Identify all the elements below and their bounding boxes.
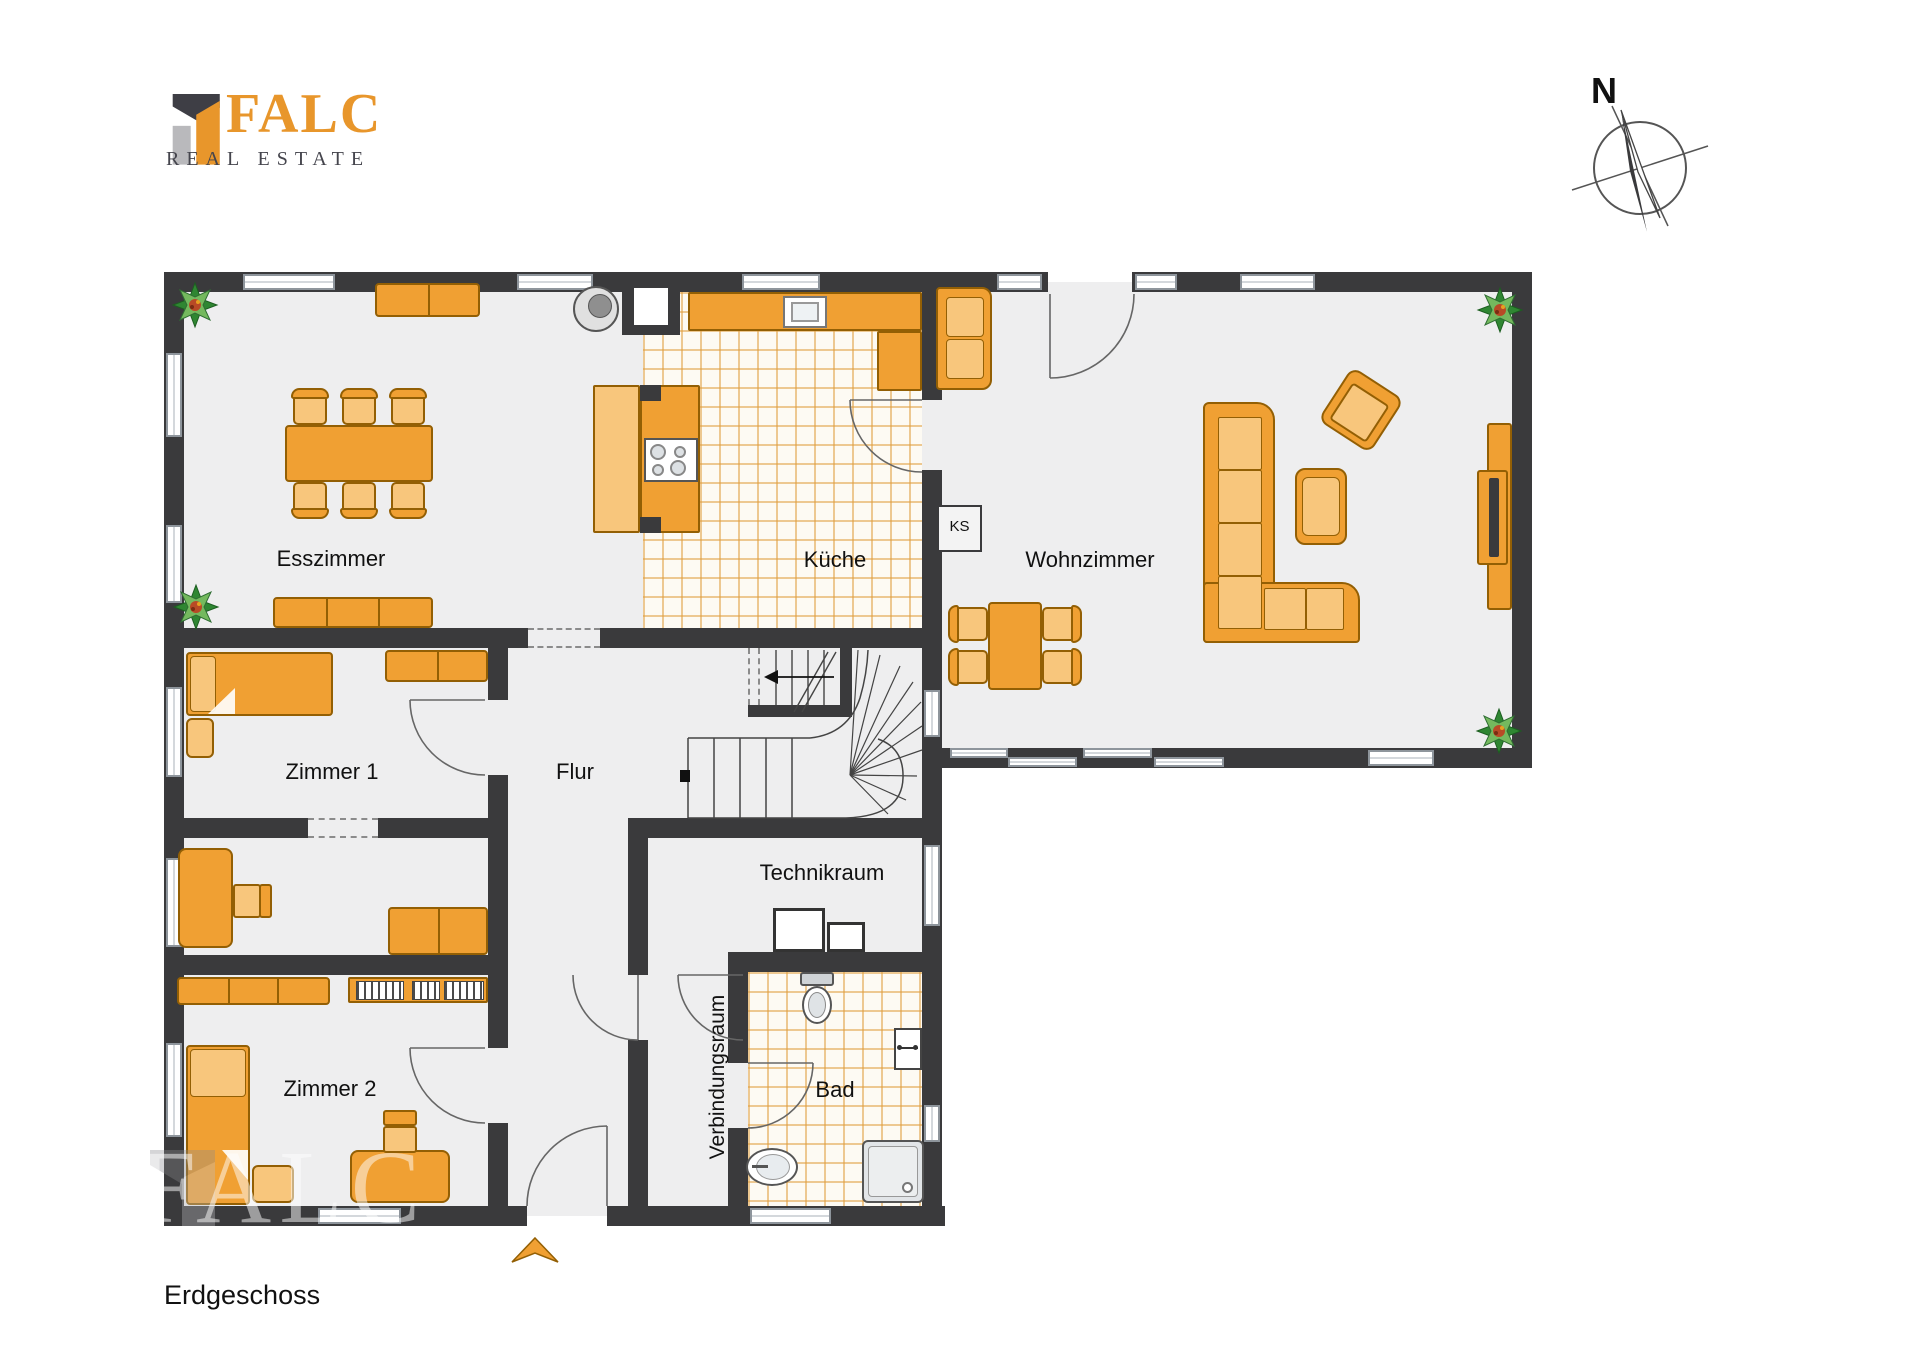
- dining-chair: [952, 650, 988, 684]
- sideboard: [385, 650, 488, 682]
- wall-v1-b: [488, 775, 508, 1048]
- dining-chair: [1042, 607, 1078, 641]
- shower-drain: [902, 1182, 913, 1193]
- window: [1135, 274, 1177, 290]
- compass-north-label: N: [1584, 70, 1624, 112]
- sofa-cushion: [946, 297, 984, 337]
- window: [1368, 750, 1434, 766]
- boiler-bracket: [827, 922, 865, 952]
- window: [166, 687, 182, 777]
- window: [997, 274, 1042, 290]
- wardrobe: [348, 977, 488, 1003]
- nightstand: [252, 1165, 294, 1203]
- wall-h2-a: [164, 818, 308, 838]
- desk-chair: [383, 1126, 417, 1153]
- tv-screen: [1489, 478, 1499, 557]
- wall-wz-right: [1512, 272, 1532, 768]
- burner: [650, 444, 666, 460]
- desk: [350, 1150, 450, 1203]
- compass-icon: [1572, 106, 1708, 232]
- fridge-label: KS: [937, 518, 982, 535]
- toilet-tank: [800, 972, 834, 986]
- entrance-arrow-icon: [512, 1238, 558, 1262]
- coffee-table-top: [1302, 477, 1340, 536]
- window: [924, 845, 940, 926]
- wood-stove-inner: [588, 294, 612, 318]
- wall-h2-b: [378, 818, 508, 838]
- window: [166, 1043, 182, 1137]
- kitchen-counter-right: [877, 331, 922, 391]
- clothes-rail-icon: [356, 981, 404, 1000]
- dining-chair: [342, 482, 376, 515]
- window: [1008, 757, 1077, 767]
- island-joint: [640, 517, 661, 533]
- sofa-cushion: [1218, 523, 1262, 576]
- window: [750, 1208, 831, 1224]
- wall-niche-bottom: [748, 705, 852, 717]
- burner: [652, 464, 664, 476]
- label-wohnzimmer: Wohnzimmer: [990, 547, 1190, 573]
- island-joint: [640, 385, 661, 401]
- wall-h4: [628, 818, 922, 838]
- dining-chair: [391, 392, 425, 425]
- logo-wordmark: FALC: [226, 82, 382, 146]
- wall-h5: [728, 952, 942, 972]
- desk-chair-back: [383, 1110, 417, 1126]
- label-bad: Bad: [735, 1077, 935, 1103]
- open-passage: [528, 628, 600, 648]
- label-zimmer1: Zimmer 1: [232, 759, 432, 785]
- window: [517, 274, 593, 290]
- floorplan-page: FALC REAL ESTATE N: [0, 0, 1920, 1357]
- kitchen-island: [593, 385, 640, 533]
- desk: [178, 848, 233, 948]
- wall-v1-c: [488, 1123, 508, 1206]
- wall-v2-b: [628, 1040, 648, 1206]
- toilet-bowl: [808, 992, 826, 1018]
- dining-table: [285, 425, 433, 482]
- window: [950, 748, 1008, 758]
- radiator-knob: [897, 1045, 902, 1050]
- sofa-cushion: [1264, 588, 1306, 630]
- dining-chair: [293, 392, 327, 425]
- window: [243, 274, 335, 290]
- wall-h1-a: [164, 628, 528, 648]
- wall-v2-a: [628, 838, 648, 975]
- label-kueche: Küche: [735, 547, 935, 573]
- boiler-icon: [773, 908, 825, 952]
- sofa-cushion: [1218, 576, 1262, 629]
- sofa-cushion: [1218, 470, 1262, 523]
- dresser: [388, 907, 488, 955]
- sink-tap: [752, 1165, 768, 1168]
- small-dining-table: [988, 602, 1042, 690]
- sideboard: [375, 283, 480, 317]
- wall-top-b: [1132, 272, 1532, 292]
- window: [166, 525, 182, 603]
- logo-tagline: REAL ESTATE: [166, 148, 370, 171]
- clothes-rail-icon: [444, 981, 484, 1000]
- desk-chair: [233, 884, 261, 918]
- wall-h3: [164, 955, 508, 975]
- wall-v1-a: [488, 648, 508, 700]
- radiator-knob: [913, 1045, 918, 1050]
- burner: [670, 460, 686, 476]
- dining-chair: [293, 482, 327, 515]
- bed-pillow: [190, 656, 216, 712]
- stove-hob-icon: [644, 438, 698, 482]
- label-zimmer2: Zimmer 2: [230, 1076, 430, 1102]
- floor-title: Erdgeschoss: [164, 1280, 464, 1311]
- desk-chair-back: [259, 884, 272, 918]
- label-flur: Flur: [475, 759, 675, 785]
- dining-chair: [1042, 650, 1078, 684]
- window: [166, 353, 182, 437]
- sofa-cushion: [946, 339, 984, 379]
- open-passage: [308, 818, 378, 838]
- window: [1240, 274, 1315, 290]
- window: [1083, 748, 1152, 758]
- sideboard: [273, 597, 433, 628]
- dining-chair: [952, 607, 988, 641]
- window: [924, 690, 940, 737]
- burner: [674, 446, 686, 458]
- wall-niche-right: [840, 628, 852, 717]
- label-technikraum: Technikraum: [722, 860, 922, 886]
- window: [318, 1208, 401, 1224]
- window: [742, 274, 820, 290]
- clothes-rail-icon: [412, 981, 440, 1000]
- dining-chair: [391, 482, 425, 515]
- kitchen-sink-basin: [791, 302, 819, 322]
- falc-logo: FALC REAL ESTATE: [160, 88, 480, 183]
- sideboard: [177, 977, 330, 1005]
- nightstand: [186, 718, 214, 758]
- label-esszimmer: Esszimmer: [231, 546, 431, 572]
- wall-h1-b: [600, 628, 922, 648]
- sofa-cushion: [1306, 588, 1344, 630]
- window: [1154, 757, 1224, 767]
- chimney-shaft: [634, 288, 668, 325]
- window: [924, 1105, 940, 1142]
- dining-chair: [342, 392, 376, 425]
- open-passage: [748, 648, 760, 705]
- label-verbindungsraum: Verbindungsraum: [706, 948, 732, 1206]
- sofa-cushion: [1218, 417, 1262, 470]
